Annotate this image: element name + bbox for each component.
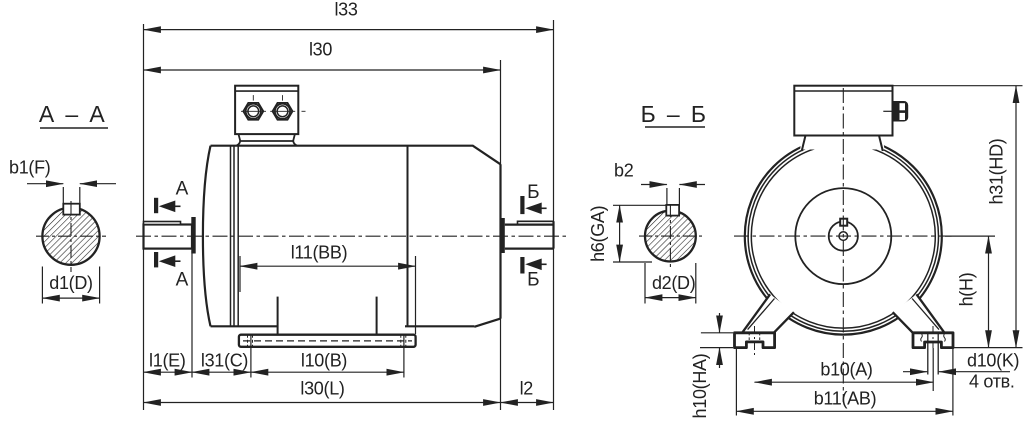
svg-text:Б – Б: Б – Б (641, 101, 709, 127)
svg-text:d2(D): d2(D) (652, 273, 696, 293)
svg-text:Б: Б (527, 182, 539, 203)
svg-text:l30(L): l30(L) (300, 379, 344, 399)
svg-text:А – А: А – А (39, 101, 107, 127)
svg-text:l1(E): l1(E) (149, 351, 186, 371)
svg-text:Б: Б (527, 269, 539, 290)
svg-text:l10(B): l10(B) (301, 351, 347, 371)
svg-text:b11(AB): b11(AB) (814, 389, 877, 409)
svg-text:А: А (176, 269, 189, 290)
svg-text:b2: b2 (614, 161, 634, 181)
svg-text:h(H): h(H) (957, 273, 977, 307)
svg-text:h10(HA): h10(HA) (690, 354, 710, 419)
svg-text:d10(K): d10(K) (967, 351, 1019, 371)
svg-text:l30: l30 (309, 40, 332, 60)
svg-text:b1(F): b1(F) (9, 158, 51, 178)
svg-text:l31(C): l31(C) (201, 351, 248, 371)
svg-text:А: А (176, 179, 189, 200)
svg-text:l11(BB): l11(BB) (291, 242, 348, 262)
svg-text:h6(GA): h6(GA) (588, 206, 608, 262)
svg-text:l33: l33 (334, 0, 357, 20)
svg-text:l2: l2 (520, 379, 534, 399)
svg-text:b10(A): b10(A) (820, 360, 872, 380)
svg-text:h31(HD): h31(HD) (987, 139, 1007, 205)
svg-text:d1(D): d1(D) (49, 273, 93, 293)
svg-text:4 отв.: 4 отв. (969, 372, 1015, 392)
